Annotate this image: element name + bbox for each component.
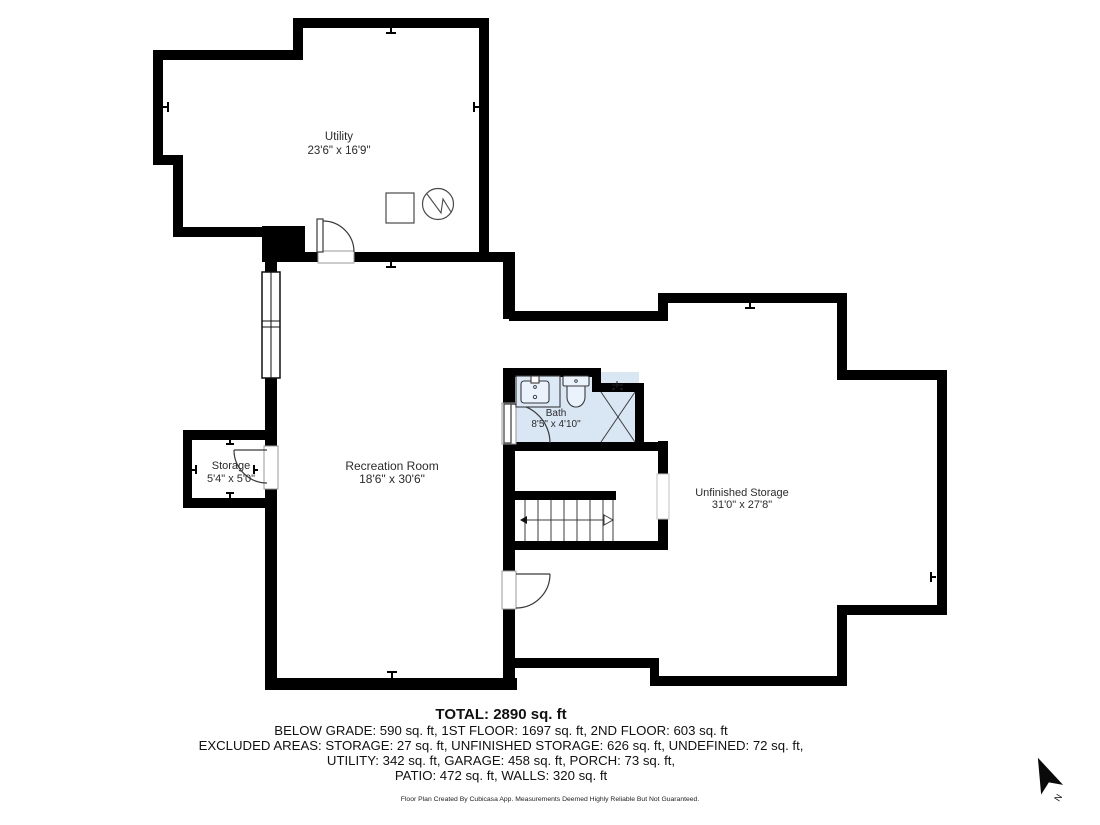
room-dims: 8'5" x 4'10" — [531, 419, 580, 430]
north-arrow-icon: N — [1027, 753, 1064, 803]
disclaimer-text: Floor Plan Created By Cubicasa App. Meas… — [401, 796, 699, 803]
utility-fixtures — [386, 189, 454, 224]
room-name: Bath — [531, 408, 580, 419]
room-name: Utility — [307, 130, 370, 144]
sink-vanity-icon — [516, 376, 560, 407]
room-dims: 5'4" x 5'0" — [207, 473, 255, 486]
window — [262, 272, 280, 378]
landing-passage-opening — [657, 474, 669, 519]
summary-line: EXCLUDED AREAS: STORAGE: 27 sq. ft, UNFI… — [199, 738, 804, 753]
understair-door — [516, 574, 550, 608]
unfinished-storage-label: Unfinished Storage 31'0" x 27'8" — [695, 487, 789, 511]
summary-line: PATIO: 472 sq. ft, WALLS: 320 sq. ft — [199, 768, 804, 783]
recreation-room-label: Recreation Room 18'6" x 30'6" — [345, 460, 438, 486]
summary-line: UTILITY: 342 sq. ft, GARAGE: 458 sq. ft,… — [199, 753, 804, 768]
understair-door-opening — [502, 571, 516, 609]
room-dims: 23'6" x 16'9" — [307, 144, 370, 158]
appliance-square-icon — [386, 193, 414, 223]
room-dims: 31'0" x 27'8" — [695, 499, 789, 511]
north-label: N — [1052, 792, 1064, 803]
storage-room-label: Storage 5'4" x 5'0" — [207, 460, 255, 486]
room-dims: 18'6" x 30'6" — [345, 473, 438, 486]
summary-line: BELOW GRADE: 590 sq. ft, 1ST FLOOR: 1697… — [199, 723, 804, 738]
water-heater-icon — [423, 189, 454, 220]
room-name: Unfinished Storage — [695, 487, 789, 499]
stairs-icon — [520, 500, 613, 541]
utility-door-opening — [318, 251, 354, 263]
utility-door — [317, 219, 354, 252]
room-name: Storage — [207, 460, 255, 473]
utility-room-label: Utility 23'6" x 16'9" — [307, 130, 370, 158]
bath-room-label: Bath 8'5" x 4'10" — [531, 408, 580, 430]
floor-plan-page: N Utility 23'6" x 16'9" Recreation Room … — [0, 0, 1100, 825]
total-area: TOTAL: 2890 sq. ft — [199, 706, 804, 723]
area-summary: TOTAL: 2890 sq. ft BELOW GRADE: 590 sq. … — [199, 706, 804, 783]
